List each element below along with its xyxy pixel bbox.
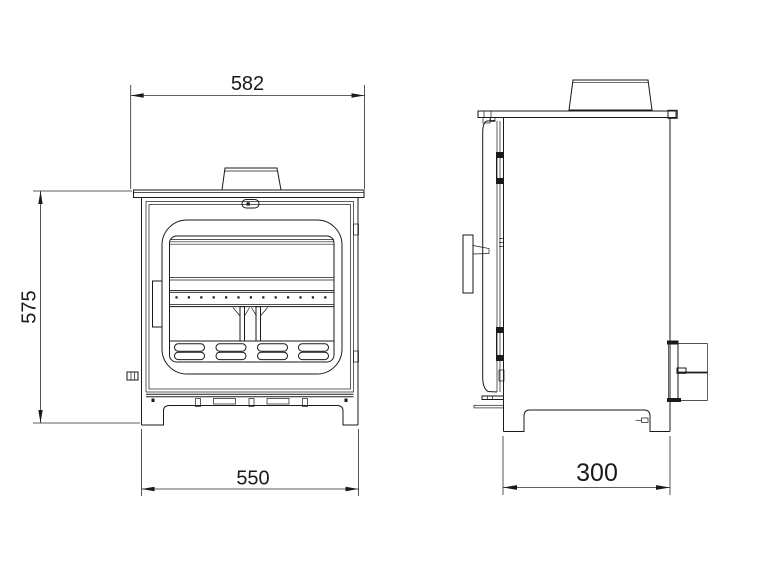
base-plinth-front: [142, 394, 359, 425]
dim-base-width: 550: [142, 429, 359, 496]
door-handle-side: [463, 235, 489, 293]
log-retainer-bars: [233, 307, 268, 341]
technical-drawing-page: 582 575 550 300: [0, 0, 780, 580]
dim-depth-label: 300: [576, 459, 618, 487]
dim-base-width-label: 550: [236, 468, 269, 490]
dim-depth: 300: [503, 436, 670, 495]
arrow-right-icon: [656, 485, 670, 490]
stove-technical-drawing: 582 575 550 300: [0, 0, 780, 580]
firebox-interior: [170, 242, 335, 341]
dim-overall-height-label: 575: [19, 290, 41, 323]
arrow-left-icon: [131, 93, 144, 97]
bottom-grille: [170, 341, 335, 360]
flue-collar-front: [222, 168, 281, 190]
arrow-left-icon: [503, 485, 517, 490]
dim-overall-width: 582: [131, 73, 365, 189]
top-plate-side: [478, 110, 677, 123]
stove-body-front: [142, 198, 359, 426]
stove-body-side: [504, 118, 671, 432]
side-view: [463, 80, 708, 432]
door-handle-front: [153, 281, 163, 327]
air-holes-row: [175, 296, 326, 298]
top-plate-front: [134, 190, 365, 198]
rear-flue-outlet: [667, 341, 708, 403]
dimensions: 582 575 550 300: [19, 73, 671, 496]
arrow-up-icon: [38, 191, 42, 204]
arrow-right-icon: [352, 93, 365, 97]
door-latch: [242, 200, 259, 209]
front-view: [127, 168, 364, 425]
arrow-down-icon: [38, 410, 42, 423]
dim-overall-width-label: 582: [231, 73, 264, 95]
flue-collar-side: [569, 80, 652, 110]
arrow-left-icon: [142, 487, 155, 491]
door-side-profile: [483, 121, 504, 393]
arrow-right-icon: [346, 487, 359, 491]
dim-overall-height: 575: [19, 191, 141, 423]
air-control-knob: [127, 372, 138, 380]
